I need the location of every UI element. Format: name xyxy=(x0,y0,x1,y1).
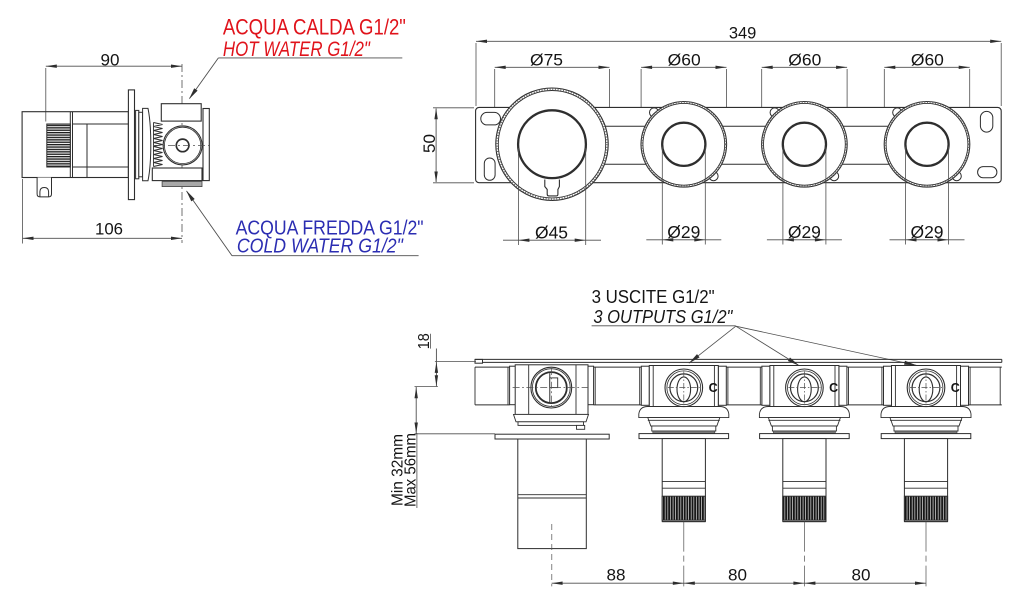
svg-text:Ø29: Ø29 xyxy=(911,222,944,242)
svg-text:C: C xyxy=(829,381,838,395)
svg-text:349: 349 xyxy=(729,24,757,43)
svg-text:80: 80 xyxy=(728,565,747,584)
svg-text:88: 88 xyxy=(607,565,626,584)
svg-text:ACQUA CALDA G1/2": ACQUA CALDA G1/2" xyxy=(223,15,406,40)
svg-text:Ø75: Ø75 xyxy=(530,51,563,70)
svg-text:C: C xyxy=(709,381,718,395)
svg-text:Ø45: Ø45 xyxy=(535,222,568,242)
svg-text:Ø29: Ø29 xyxy=(788,222,821,242)
svg-text:3 OUTPUTS G1/2": 3 OUTPUTS G1/2" xyxy=(593,307,733,327)
svg-text:90: 90 xyxy=(101,51,120,70)
svg-text:50: 50 xyxy=(420,134,439,153)
svg-text:Ø60: Ø60 xyxy=(911,51,944,70)
svg-text:Ø60: Ø60 xyxy=(788,51,821,70)
svg-text:3 USCITE G1/2": 3 USCITE G1/2" xyxy=(592,287,715,307)
svg-text:Ø29: Ø29 xyxy=(667,222,700,242)
svg-text:106: 106 xyxy=(95,220,123,239)
svg-text:80: 80 xyxy=(852,565,871,584)
svg-text:C: C xyxy=(951,381,960,395)
svg-text:COLD WATER G1/2": COLD WATER G1/2" xyxy=(237,235,404,258)
svg-text:Ø60: Ø60 xyxy=(668,51,701,70)
